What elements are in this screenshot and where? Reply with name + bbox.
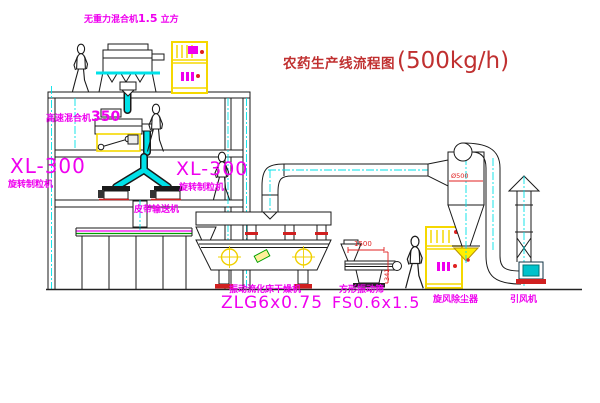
fluid-bed-dryer-drawing (196, 212, 331, 289)
indicator-light (453, 264, 457, 268)
label-granulator-right-name: 旋转制粒机 (179, 184, 224, 193)
induced-draft-fan-drawing (516, 262, 546, 284)
label-cyclone: 旋风除尘器 (433, 296, 478, 305)
dim-screen-height: 341 (384, 269, 391, 281)
label-granulator-right-model: XL-300 (176, 160, 248, 179)
label-dryer-model: ZLG6x0.75 (221, 295, 323, 312)
gravity-mixer-drawing (96, 44, 164, 96)
person-figure (73, 44, 89, 91)
diagram-title: 农药生产线流程图 (500kg/h) (283, 48, 509, 74)
control-cabinet-bottom (426, 227, 462, 288)
title-text: 农药生产线流程图 (283, 52, 395, 72)
label-belt-conveyor: 皮带输送机 (134, 206, 179, 215)
label-fan: 引风机 (510, 296, 537, 305)
cabinet-display (188, 46, 198, 54)
indicator-light (196, 74, 200, 78)
granulator-right-drawing (150, 186, 182, 200)
title-capacity: (500kg/h) (397, 48, 509, 74)
dim-screen-length: 1500 (354, 241, 372, 248)
cad-flow-diagram: 农药生产线流程图 (500kg/h) 无重力混合机1.5 立方 高速混合机350… (0, 0, 600, 403)
belt-conveyor-drawing (76, 228, 192, 289)
control-cabinet-top (172, 42, 207, 93)
label-granulator-left-name: 旋转制粒机 (8, 181, 53, 190)
label-screen-model: FS0.6x1.5 (332, 295, 420, 311)
label-gravity-mixer: 无重力混合机1.5 立方 (84, 13, 179, 25)
label-granulator-left-model: XL-300 (10, 156, 86, 176)
label-high-speed-mixer: 高速混合机350 (46, 110, 120, 124)
person-figure (406, 236, 424, 288)
exhaust-duct (262, 164, 448, 219)
indicator-light (200, 50, 204, 54)
person-figure (148, 104, 164, 151)
dim-cyclone-inlet: Ø500 (451, 173, 469, 180)
granulator-left-drawing (98, 186, 130, 200)
